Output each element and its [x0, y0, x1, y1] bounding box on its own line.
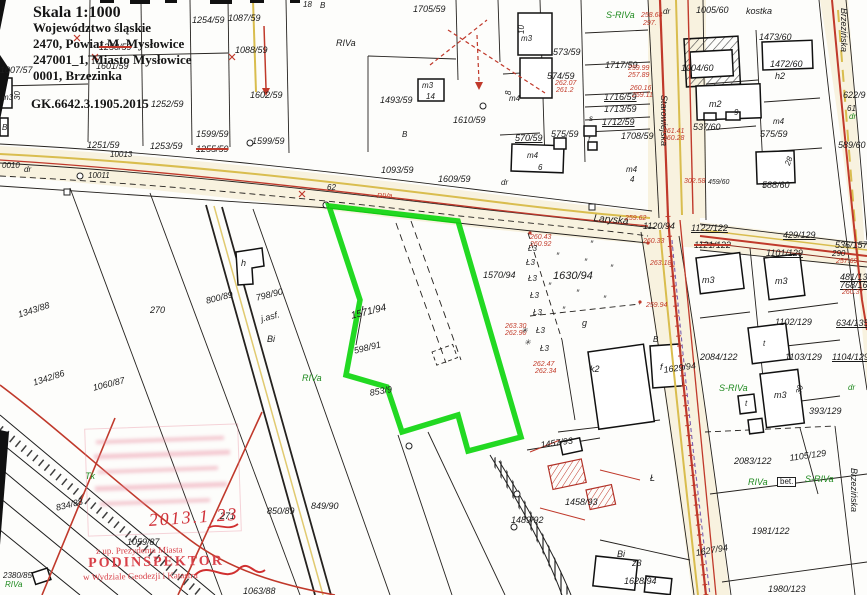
map-label: ✳ — [524, 339, 531, 347]
map-label: Ł3 — [528, 245, 537, 253]
map-label: 10011 — [88, 172, 110, 180]
map-label: 262.07 — [555, 80, 576, 87]
map-label: 1628/94 — [624, 577, 657, 586]
map-label: 259.11 — [632, 92, 653, 99]
map-label: ″ — [610, 264, 613, 273]
map-label: 1007/57 — [0, 66, 33, 75]
map-label: 9 — [734, 109, 738, 117]
map-label: ✳ — [521, 327, 528, 335]
map-label: B — [2, 124, 7, 132]
map-label: S-RIVa — [805, 475, 834, 484]
map-label: ″ — [562, 306, 565, 315]
map-label: dr — [849, 113, 856, 121]
map-label: m3 — [774, 391, 787, 400]
map-label: 1252/59 — [151, 100, 184, 109]
map-label: 1609/59 — [438, 175, 471, 184]
map-label: m4 — [509, 95, 520, 103]
map-label: 6 — [538, 164, 542, 172]
map-label: 634/135 — [836, 319, 867, 328]
map-label: 259.99 — [628, 65, 649, 72]
map-label: ″ — [576, 289, 579, 298]
map-label: 261.41 — [663, 128, 684, 135]
map-label: 1004/60 — [681, 64, 714, 73]
map-label: 260.33 — [643, 238, 664, 245]
map-label: 589/60 — [838, 141, 866, 150]
map-label: 10 — [518, 25, 526, 34]
map-label: 575/59 — [551, 130, 579, 139]
map-label: 1255/59 — [196, 145, 229, 154]
map-label: m4 — [773, 118, 784, 126]
map-label: g — [582, 319, 587, 328]
map-label: 257.69 — [836, 258, 857, 265]
map-label: 570/59 — [515, 134, 543, 143]
map-label: kostka — [746, 7, 772, 16]
map-label: 573/59 — [553, 48, 581, 57]
map-label: 262.34 — [535, 368, 556, 375]
map-label: Brzezińska — [849, 468, 858, 512]
map-label: 2380/85 — [3, 572, 32, 580]
map-label: m4 — [527, 152, 538, 160]
map-label: RIVa — [336, 39, 356, 48]
map-label: Ł3 — [528, 275, 537, 283]
map-label: 18 — [303, 1, 312, 9]
map-label: m3 — [2, 94, 13, 102]
map-label: bet. — [777, 477, 796, 487]
map-label: 4 — [630, 176, 634, 184]
map-label: m3 — [775, 277, 788, 286]
map-label: 257.89 — [628, 72, 649, 79]
map-label: 1254/59 — [192, 16, 225, 25]
map-label: dr — [848, 384, 855, 392]
map-label: Bi — [267, 335, 275, 344]
map-label: 1251/59 — [87, 141, 120, 150]
map-label: 1102/129 — [775, 318, 812, 327]
header-doc-number: GK.6642.3.1905.2015 — [31, 97, 149, 111]
stamp-department-line: w Wydziale Geodezji i Katastru — [83, 570, 198, 582]
map-label: dr — [663, 8, 670, 16]
map-label: 2084/122 — [700, 353, 738, 362]
map-label: 1093/59 — [381, 166, 414, 175]
map-label: 1122/122 — [691, 224, 728, 233]
map-label: 622/9 — [843, 91, 866, 100]
map-label: Brzezińska — [839, 8, 848, 52]
map-label: 259.62 — [625, 215, 646, 222]
map-label: 1121/122 — [694, 241, 731, 250]
map-label: B — [402, 131, 407, 139]
map-label: RIVa — [748, 478, 768, 487]
map-label: B — [320, 2, 325, 10]
map-label: 1120/94 — [643, 222, 675, 231]
map-label: h2 — [775, 72, 785, 81]
map-label: 290 — [832, 250, 845, 258]
map-label: 1103/129 — [785, 353, 822, 362]
map-label: 1981/122 — [752, 527, 790, 536]
map-label: dr — [24, 166, 31, 174]
map-label: 1493/59 — [380, 96, 413, 105]
map-label: 263.18 — [650, 260, 671, 267]
map-label: Ł3 — [540, 345, 549, 353]
map-label: ″ — [590, 240, 593, 249]
map-label: ″ — [584, 258, 587, 267]
map-label: 1705/59 — [413, 5, 446, 14]
map-label: 260.43 — [530, 234, 551, 241]
map-label: 260.28 — [663, 135, 684, 142]
map-label: 1005/60 — [696, 6, 729, 15]
map-label: RIVa — [302, 374, 322, 383]
map-label: Ł — [650, 474, 655, 483]
map-label: 1489/92 — [511, 516, 544, 525]
map-label: 261.2 — [556, 87, 574, 94]
map-label: 302.58 — [684, 178, 705, 185]
map-label: m3 — [521, 35, 532, 43]
map-label: 850/89 — [267, 507, 295, 516]
map-label: t — [763, 340, 765, 348]
map-label: Ł3 — [536, 327, 545, 335]
map-label: ″ — [548, 282, 551, 291]
map-label: ″ — [603, 295, 606, 304]
map-label: 1104/129 — [832, 353, 867, 362]
map-label: 1570/94 — [483, 271, 516, 280]
map-label: 260.37 — [842, 289, 863, 296]
map-label: s — [589, 115, 593, 123]
map-label: 30 — [14, 91, 22, 100]
map-label: ″ — [556, 252, 559, 261]
map-label: Ł3 — [530, 292, 539, 300]
map-label: 575/59 — [760, 130, 788, 139]
map-label: 393/129 — [809, 407, 842, 416]
map-label: 1708/59 — [621, 132, 654, 141]
map-label: 1713/59 — [604, 105, 637, 114]
header-voivodeship: Województwo śląskie — [33, 21, 151, 35]
highlighted-parcel-outline — [329, 206, 521, 451]
map-label: 1250/59 — [99, 43, 132, 52]
map-label: 1610/59 — [453, 116, 486, 125]
map-label: m3 — [702, 276, 715, 285]
map-label: Ł3 — [526, 259, 535, 267]
map-label: 62 — [327, 184, 336, 192]
map-label: 260.16 — [630, 85, 651, 92]
map-label: 1472/60 — [770, 60, 803, 69]
map-label: 849/90 — [311, 502, 339, 511]
map-label: k2 — [590, 365, 600, 374]
cadastral-map-page: Skala 1:1000 Województwo śląskie 2470, P… — [0, 0, 867, 595]
map-label: 2083/122 — [734, 457, 772, 466]
map-label: 1980/123 — [768, 585, 806, 594]
map-label: 429/129 — [783, 231, 816, 240]
map-label: 1601/59 — [96, 62, 129, 71]
map-label: 1088/59 — [235, 46, 268, 55]
map-label: 1458/93 — [565, 498, 598, 507]
header-district: 0001, Brzezinka — [33, 69, 122, 83]
map-label: 10013 — [110, 151, 132, 159]
map-label: 537/60 — [693, 123, 721, 132]
map-label: 259.94 — [646, 302, 667, 309]
map-label: 297. — [643, 20, 657, 27]
map-label: 1473/60 — [759, 33, 792, 42]
map-label: S-RIVa — [606, 11, 635, 20]
map-label: h — [241, 259, 246, 268]
map-label: Ł3 — [533, 309, 542, 317]
map-label: 1712/59 — [602, 118, 635, 127]
map-label: m3 — [422, 82, 433, 90]
map-label: 588/60 — [762, 181, 790, 190]
map-label: f — [660, 363, 663, 372]
map-label: S-RIVa — [719, 384, 748, 393]
map-label: t — [588, 136, 590, 144]
map-label: 258.68 — [641, 12, 662, 19]
map-label: 1630/94 — [553, 271, 593, 282]
map-label: 459/60 — [708, 179, 729, 186]
map-label: 270 — [150, 306, 165, 315]
map-label: 1101/129 — [766, 249, 803, 258]
map-label: RIVa — [5, 581, 23, 589]
map-label: 1599/59 — [252, 137, 285, 146]
map-label: m4 — [626, 166, 637, 174]
map-label: B — [653, 336, 658, 344]
map-label: dr — [501, 179, 508, 187]
map-label: 14 — [426, 93, 435, 101]
stamp-title: PODINSPEKTOR — [88, 554, 224, 572]
map-label: RIVa — [377, 193, 392, 200]
map-label: 262.47 — [533, 361, 554, 368]
map-label: t — [745, 400, 747, 408]
map-label: 1253/59 — [150, 142, 183, 151]
map-label: 1063/88 — [243, 587, 276, 595]
map-label: 0010 — [2, 162, 20, 170]
map-label: 1599/59 — [196, 130, 229, 139]
map-label: Bi — [617, 550, 625, 559]
map-label: m2 — [709, 100, 722, 109]
map-label: 1602/59 — [250, 91, 283, 100]
map-label: z3 — [632, 559, 642, 568]
map-label: 1087/59 — [228, 14, 261, 23]
